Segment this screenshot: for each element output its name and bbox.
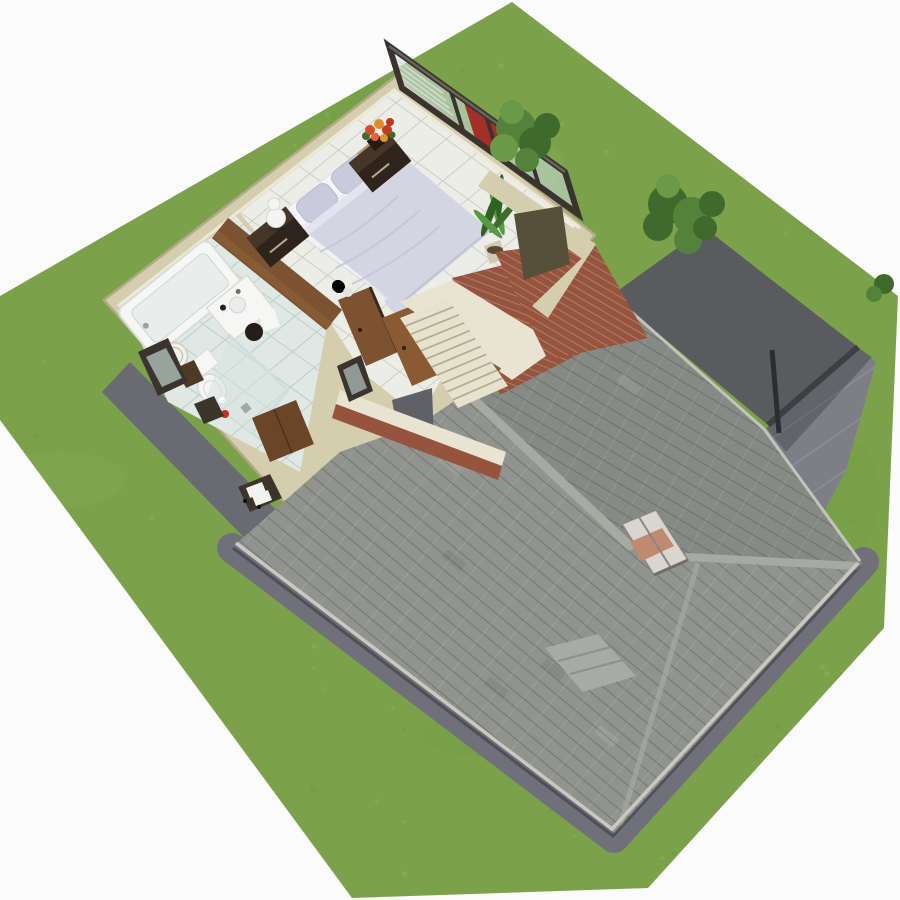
vanity-stool bbox=[245, 323, 263, 341]
house-render: 3D aerial architectural rendering — uppe… bbox=[0, 0, 900, 900]
table-lamp bbox=[267, 209, 286, 228]
floorplan-render-stage: 3D aerial architectural rendering — uppe… bbox=[0, 0, 900, 900]
